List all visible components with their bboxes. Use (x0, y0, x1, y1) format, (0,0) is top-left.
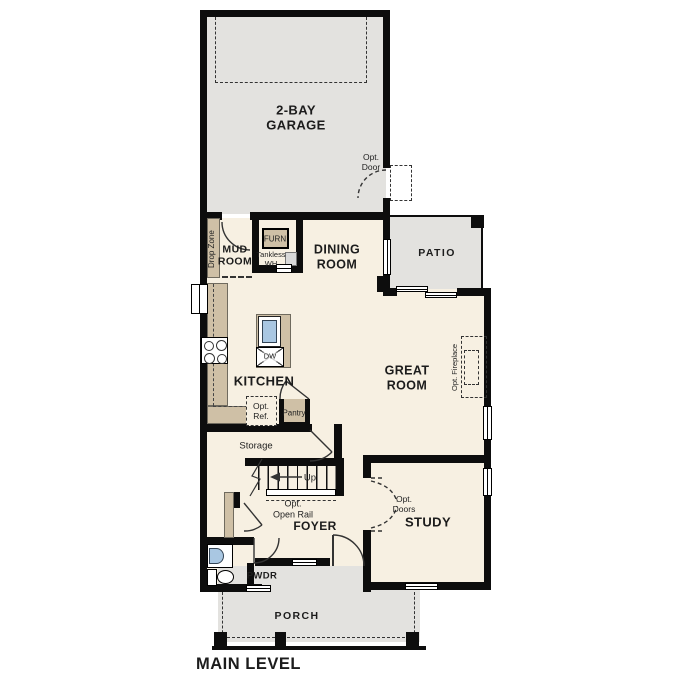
mud-room-label: MUD ROOM (218, 244, 252, 269)
garage-label: 2-BAY GARAGE (266, 103, 325, 134)
door-arc (333, 535, 364, 566)
porch-label: PORCH (275, 610, 320, 622)
opt-door-label: Opt. Door (362, 152, 380, 172)
up-label: Up (304, 472, 316, 483)
furn-label: FURN (264, 234, 286, 243)
opt-fireplace-label: Opt. Fireplace (450, 336, 460, 398)
foyer-label: FOYER (293, 519, 336, 533)
door-leaf (310, 430, 332, 452)
dining-room-label: DINING ROOM (314, 242, 360, 272)
great-room-label: GREAT ROOM (385, 363, 430, 393)
kitchen-label: KITCHEN (234, 373, 295, 388)
tankless-wh-label: Tankless WH (256, 251, 285, 269)
storage-label: Storage (239, 440, 272, 451)
up-arrow-head (270, 473, 280, 482)
opt-open-rail-label: Opt. Open Rail (273, 498, 313, 519)
stair-break-line (250, 459, 262, 496)
door-swings-overlay (0, 0, 687, 687)
opt-ref-label: Opt. Ref. (253, 401, 269, 421)
study-label: STUDY (405, 514, 451, 529)
door-leaf (244, 503, 262, 525)
opt-door-arc (358, 170, 386, 198)
patio-label: PATIO (418, 247, 456, 259)
floor-plan: Drop Zone DW (0, 0, 687, 687)
door-arc (310, 452, 332, 461)
opt-doors-label: Opt. Doors (393, 494, 416, 514)
door-arc (254, 538, 279, 563)
pwdr-label: PWDR (247, 570, 278, 581)
page-title: MAIN LEVEL (196, 655, 301, 674)
door-arc (244, 525, 262, 531)
pantry-label: Pantry (282, 408, 305, 417)
